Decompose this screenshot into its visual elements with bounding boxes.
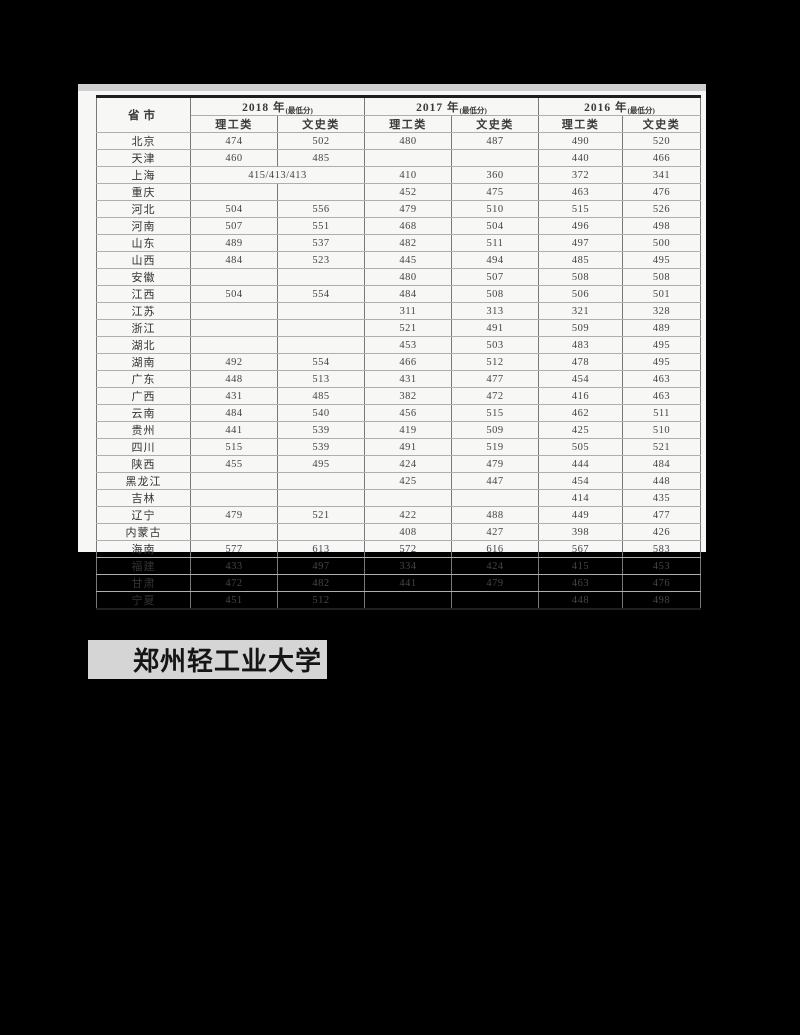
score-cell: 495 [623, 337, 701, 354]
year-label: 2018 年 [242, 102, 285, 114]
province-cell: 海南 [97, 541, 191, 558]
score-cell: 408 [365, 524, 452, 541]
score-cell: 491 [365, 439, 452, 456]
admission-score-table: 省市 2018 年(最低分) 2017 年(最低分) 2016 年(最低分) 理… [96, 95, 701, 610]
score-cell: 313 [452, 303, 539, 320]
score-cell: 512 [452, 354, 539, 371]
score-cell: 480 [365, 133, 452, 150]
score-cell: 509 [452, 422, 539, 439]
score-cell: 572 [365, 541, 452, 558]
score-cell: 477 [452, 371, 539, 388]
province-cell: 山西 [97, 252, 191, 269]
province-cell: 贵州 [97, 422, 191, 439]
score-cell: 515 [452, 405, 539, 422]
scanned-document-page: 省市 2018 年(最低分) 2017 年(最低分) 2016 年(最低分) 理… [78, 84, 706, 552]
score-cell: 463 [539, 184, 623, 201]
province-cell: 江西 [97, 286, 191, 303]
score-cell [452, 592, 539, 610]
score-cell: 425 [365, 473, 452, 490]
province-cell: 陕西 [97, 456, 191, 473]
score-cell: 495 [623, 252, 701, 269]
score-cell: 489 [623, 320, 701, 337]
score-cell [191, 184, 278, 201]
score-cell: 479 [452, 456, 539, 473]
year-header-2017: 2017 年(最低分) [365, 97, 539, 116]
table-row: 北京474502480487490520 [97, 133, 701, 150]
table-row: 内蒙古408427398426 [97, 524, 701, 541]
score-cell: 497 [278, 558, 365, 575]
score-cell: 466 [623, 150, 701, 167]
score-cell: 472 [191, 575, 278, 592]
score-cell: 506 [539, 286, 623, 303]
year-header-2016: 2016 年(最低分) [539, 97, 701, 116]
score-cell: 382 [365, 388, 452, 405]
score-cell: 502 [278, 133, 365, 150]
score-cell [278, 490, 365, 507]
score-cell: 426 [623, 524, 701, 541]
score-cell: 321 [539, 303, 623, 320]
score-cell [278, 524, 365, 541]
score-cell [278, 184, 365, 201]
score-cell: 449 [539, 507, 623, 524]
score-cell: 489 [191, 235, 278, 252]
table-row: 辽宁479521422488449477 [97, 507, 701, 524]
score-cell: 508 [452, 286, 539, 303]
score-cell: 454 [539, 371, 623, 388]
province-cell: 河南 [97, 218, 191, 235]
min-score-note: (最低分) [627, 106, 655, 115]
score-cell: 498 [623, 592, 701, 610]
score-cell [191, 337, 278, 354]
score-cell: 513 [278, 371, 365, 388]
score-cell [365, 592, 452, 610]
score-cell: 491 [452, 320, 539, 337]
scan-edge [78, 84, 706, 91]
table-row: 海南577613572616567583 [97, 541, 701, 558]
province-cell: 河北 [97, 201, 191, 218]
score-cell: 477 [623, 507, 701, 524]
score-cell: 537 [278, 235, 365, 252]
province-cell: 江苏 [97, 303, 191, 320]
score-cell: 482 [365, 235, 452, 252]
score-cell [278, 473, 365, 490]
score-cell: 504 [191, 201, 278, 218]
score-cell: 510 [623, 422, 701, 439]
score-cell: 508 [539, 269, 623, 286]
year-header-2018: 2018 年(最低分) [191, 97, 365, 116]
province-cell: 内蒙古 [97, 524, 191, 541]
score-cell: 567 [539, 541, 623, 558]
page-background: 省市 2018 年(最低分) 2017 年(最低分) 2016 年(最低分) 理… [0, 0, 800, 1035]
score-cell: 551 [278, 218, 365, 235]
score-cell: 360 [452, 167, 539, 184]
table-row: 宁夏451512448498 [97, 592, 701, 610]
score-cell: 410 [365, 167, 452, 184]
table-row: 浙江521491509489 [97, 320, 701, 337]
table-row: 江苏311313321328 [97, 303, 701, 320]
score-cell: 515 [191, 439, 278, 456]
score-cell: 484 [191, 252, 278, 269]
score-cell: 441 [365, 575, 452, 592]
score-cell [278, 337, 365, 354]
score-cell: 479 [365, 201, 452, 218]
score-cell: 540 [278, 405, 365, 422]
score-cell: 466 [365, 354, 452, 371]
score-cell: 448 [191, 371, 278, 388]
score-cell [452, 490, 539, 507]
score-cell: 485 [278, 150, 365, 167]
score-cell: 311 [365, 303, 452, 320]
province-cell: 浙江 [97, 320, 191, 337]
score-cell: 472 [452, 388, 539, 405]
table-row: 河北504556479510515526 [97, 201, 701, 218]
score-cell: 496 [539, 218, 623, 235]
score-cell [365, 490, 452, 507]
table-row: 天津460485440466 [97, 150, 701, 167]
min-score-note: (最低分) [459, 106, 487, 115]
score-cell: 485 [278, 388, 365, 405]
score-cell: 463 [623, 388, 701, 405]
table-row: 山西484523445494485495 [97, 252, 701, 269]
category-header-arts: 文史类 [452, 116, 539, 133]
score-cell: 425 [539, 422, 623, 439]
score-cell: 554 [278, 354, 365, 371]
province-cell: 湖北 [97, 337, 191, 354]
score-cell: 520 [623, 133, 701, 150]
score-cell: 479 [452, 575, 539, 592]
score-cell: 500 [623, 235, 701, 252]
province-cell: 吉林 [97, 490, 191, 507]
score-cell: 485 [539, 252, 623, 269]
score-cell: 453 [365, 337, 452, 354]
table-row: 陕西455495424479444484 [97, 456, 701, 473]
province-cell: 湖南 [97, 354, 191, 371]
score-cell: 539 [278, 422, 365, 439]
score-cell: 509 [539, 320, 623, 337]
table-row: 吉林414435 [97, 490, 701, 507]
score-cell: 495 [278, 456, 365, 473]
table-row: 重庆452475463476 [97, 184, 701, 201]
score-cell: 468 [365, 218, 452, 235]
table-row: 甘肃472482441479463476 [97, 575, 701, 592]
year-label: 2017 年 [416, 102, 459, 114]
score-cell: 484 [191, 405, 278, 422]
table-row: 贵州441539419509425510 [97, 422, 701, 439]
table-row: 河南507551468504496498 [97, 218, 701, 235]
min-score-note: (最低分) [285, 106, 313, 115]
score-cell: 503 [452, 337, 539, 354]
province-cell: 安徽 [97, 269, 191, 286]
table-row: 湖北453503483495 [97, 337, 701, 354]
category-header-science: 理工类 [539, 116, 623, 133]
table-row: 山东489537482511497500 [97, 235, 701, 252]
score-cell: 480 [365, 269, 452, 286]
score-cell: 424 [452, 558, 539, 575]
score-cell: 507 [452, 269, 539, 286]
score-cell: 444 [539, 456, 623, 473]
score-cell: 616 [452, 541, 539, 558]
score-cell: 341 [623, 167, 701, 184]
score-cell: 515 [539, 201, 623, 218]
score-cell: 583 [623, 541, 701, 558]
score-cell: 511 [452, 235, 539, 252]
score-cell: 476 [623, 575, 701, 592]
score-cell-merged: 415/413/413 [191, 167, 365, 184]
province-cell: 天津 [97, 150, 191, 167]
category-header-arts: 文史类 [278, 116, 365, 133]
table-row: 安徽480507508508 [97, 269, 701, 286]
score-cell: 539 [278, 439, 365, 456]
score-cell [191, 490, 278, 507]
score-cell [191, 303, 278, 320]
score-cell: 505 [539, 439, 623, 456]
score-cell: 462 [539, 405, 623, 422]
province-cell: 北京 [97, 133, 191, 150]
score-cell: 431 [365, 371, 452, 388]
score-cell: 483 [539, 337, 623, 354]
score-cell: 474 [191, 133, 278, 150]
score-cell [278, 269, 365, 286]
score-cell: 490 [539, 133, 623, 150]
score-cell: 433 [191, 558, 278, 575]
score-cell [191, 524, 278, 541]
province-cell: 宁夏 [97, 592, 191, 610]
score-cell [365, 150, 452, 167]
score-cell: 448 [623, 473, 701, 490]
university-name-banner: 郑州轻工业大学 [88, 640, 327, 679]
score-cell: 431 [191, 388, 278, 405]
score-cell: 501 [623, 286, 701, 303]
province-cell: 黑龙江 [97, 473, 191, 490]
score-cell: 372 [539, 167, 623, 184]
category-header-science: 理工类 [191, 116, 278, 133]
score-cell: 416 [539, 388, 623, 405]
score-cell [278, 303, 365, 320]
score-cell: 424 [365, 456, 452, 473]
university-name-label: 郑州轻工业大学 [133, 641, 322, 678]
score-cell [191, 473, 278, 490]
score-cell: 487 [452, 133, 539, 150]
score-cell: 445 [365, 252, 452, 269]
table-row: 四川515539491519505521 [97, 439, 701, 456]
province-cell: 四川 [97, 439, 191, 456]
score-cell: 504 [191, 286, 278, 303]
score-cell: 613 [278, 541, 365, 558]
score-cell: 488 [452, 507, 539, 524]
score-cell: 479 [191, 507, 278, 524]
score-cell: 455 [191, 456, 278, 473]
score-cell: 519 [452, 439, 539, 456]
score-cell: 476 [623, 184, 701, 201]
score-cell: 511 [623, 405, 701, 422]
score-cell: 463 [539, 575, 623, 592]
score-cell: 451 [191, 592, 278, 610]
score-cell: 414 [539, 490, 623, 507]
table-row: 广西431485382472416463 [97, 388, 701, 405]
score-cell: 475 [452, 184, 539, 201]
province-cell: 云南 [97, 405, 191, 422]
score-cell: 508 [623, 269, 701, 286]
score-cell: 484 [623, 456, 701, 473]
score-cell: 577 [191, 541, 278, 558]
province-cell: 重庆 [97, 184, 191, 201]
score-cell: 526 [623, 201, 701, 218]
score-cell: 497 [539, 235, 623, 252]
table-header: 省市 2018 年(最低分) 2017 年(最低分) 2016 年(最低分) 理… [97, 97, 701, 133]
score-cell: 448 [539, 592, 623, 610]
score-cell: 427 [452, 524, 539, 541]
province-cell: 山东 [97, 235, 191, 252]
score-cell: 554 [278, 286, 365, 303]
score-cell: 521 [365, 320, 452, 337]
score-cell: 435 [623, 490, 701, 507]
score-cell: 463 [623, 371, 701, 388]
score-cell: 334 [365, 558, 452, 575]
score-cell [278, 320, 365, 337]
score-cell: 521 [278, 507, 365, 524]
score-cell [191, 320, 278, 337]
province-cell: 广西 [97, 388, 191, 405]
score-cell: 507 [191, 218, 278, 235]
province-column-header: 省市 [97, 97, 191, 133]
score-cell: 453 [623, 558, 701, 575]
table-row: 云南484540456515462511 [97, 405, 701, 422]
table-row: 江西504554484508506501 [97, 286, 701, 303]
score-cell: 495 [623, 354, 701, 371]
score-cell: 498 [623, 218, 701, 235]
score-cell: 556 [278, 201, 365, 218]
table-body: 北京474502480487490520天津460485440466上海415/… [97, 133, 701, 610]
year-label: 2016 年 [584, 102, 627, 114]
score-cell: 484 [365, 286, 452, 303]
province-cell: 辽宁 [97, 507, 191, 524]
score-cell: 447 [452, 473, 539, 490]
table-row: 湖南492554466512478495 [97, 354, 701, 371]
score-cell: 504 [452, 218, 539, 235]
province-cell: 广东 [97, 371, 191, 388]
score-cell: 398 [539, 524, 623, 541]
score-cell: 460 [191, 150, 278, 167]
score-cell: 492 [191, 354, 278, 371]
province-cell: 上海 [97, 167, 191, 184]
score-cell: 419 [365, 422, 452, 439]
category-header-science: 理工类 [365, 116, 452, 133]
score-cell: 415 [539, 558, 623, 575]
score-cell [191, 269, 278, 286]
score-cell: 452 [365, 184, 452, 201]
score-cell: 454 [539, 473, 623, 490]
score-cell: 440 [539, 150, 623, 167]
score-cell: 523 [278, 252, 365, 269]
score-cell: 456 [365, 405, 452, 422]
score-cell: 441 [191, 422, 278, 439]
score-cell: 422 [365, 507, 452, 524]
table-row: 福建433497334424415453 [97, 558, 701, 575]
province-cell: 甘肃 [97, 575, 191, 592]
table-header-year-row: 省市 2018 年(最低分) 2017 年(最低分) 2016 年(最低分) [97, 97, 701, 116]
score-cell: 512 [278, 592, 365, 610]
score-cell: 494 [452, 252, 539, 269]
category-header-arts: 文史类 [623, 116, 701, 133]
score-cell: 328 [623, 303, 701, 320]
table-row: 广东448513431477454463 [97, 371, 701, 388]
table-row: 黑龙江425447454448 [97, 473, 701, 490]
score-cell: 521 [623, 439, 701, 456]
score-cell: 478 [539, 354, 623, 371]
table-row: 上海415/413/413410360372341 [97, 167, 701, 184]
score-cell: 510 [452, 201, 539, 218]
province-cell: 福建 [97, 558, 191, 575]
score-cell [452, 150, 539, 167]
score-cell: 482 [278, 575, 365, 592]
